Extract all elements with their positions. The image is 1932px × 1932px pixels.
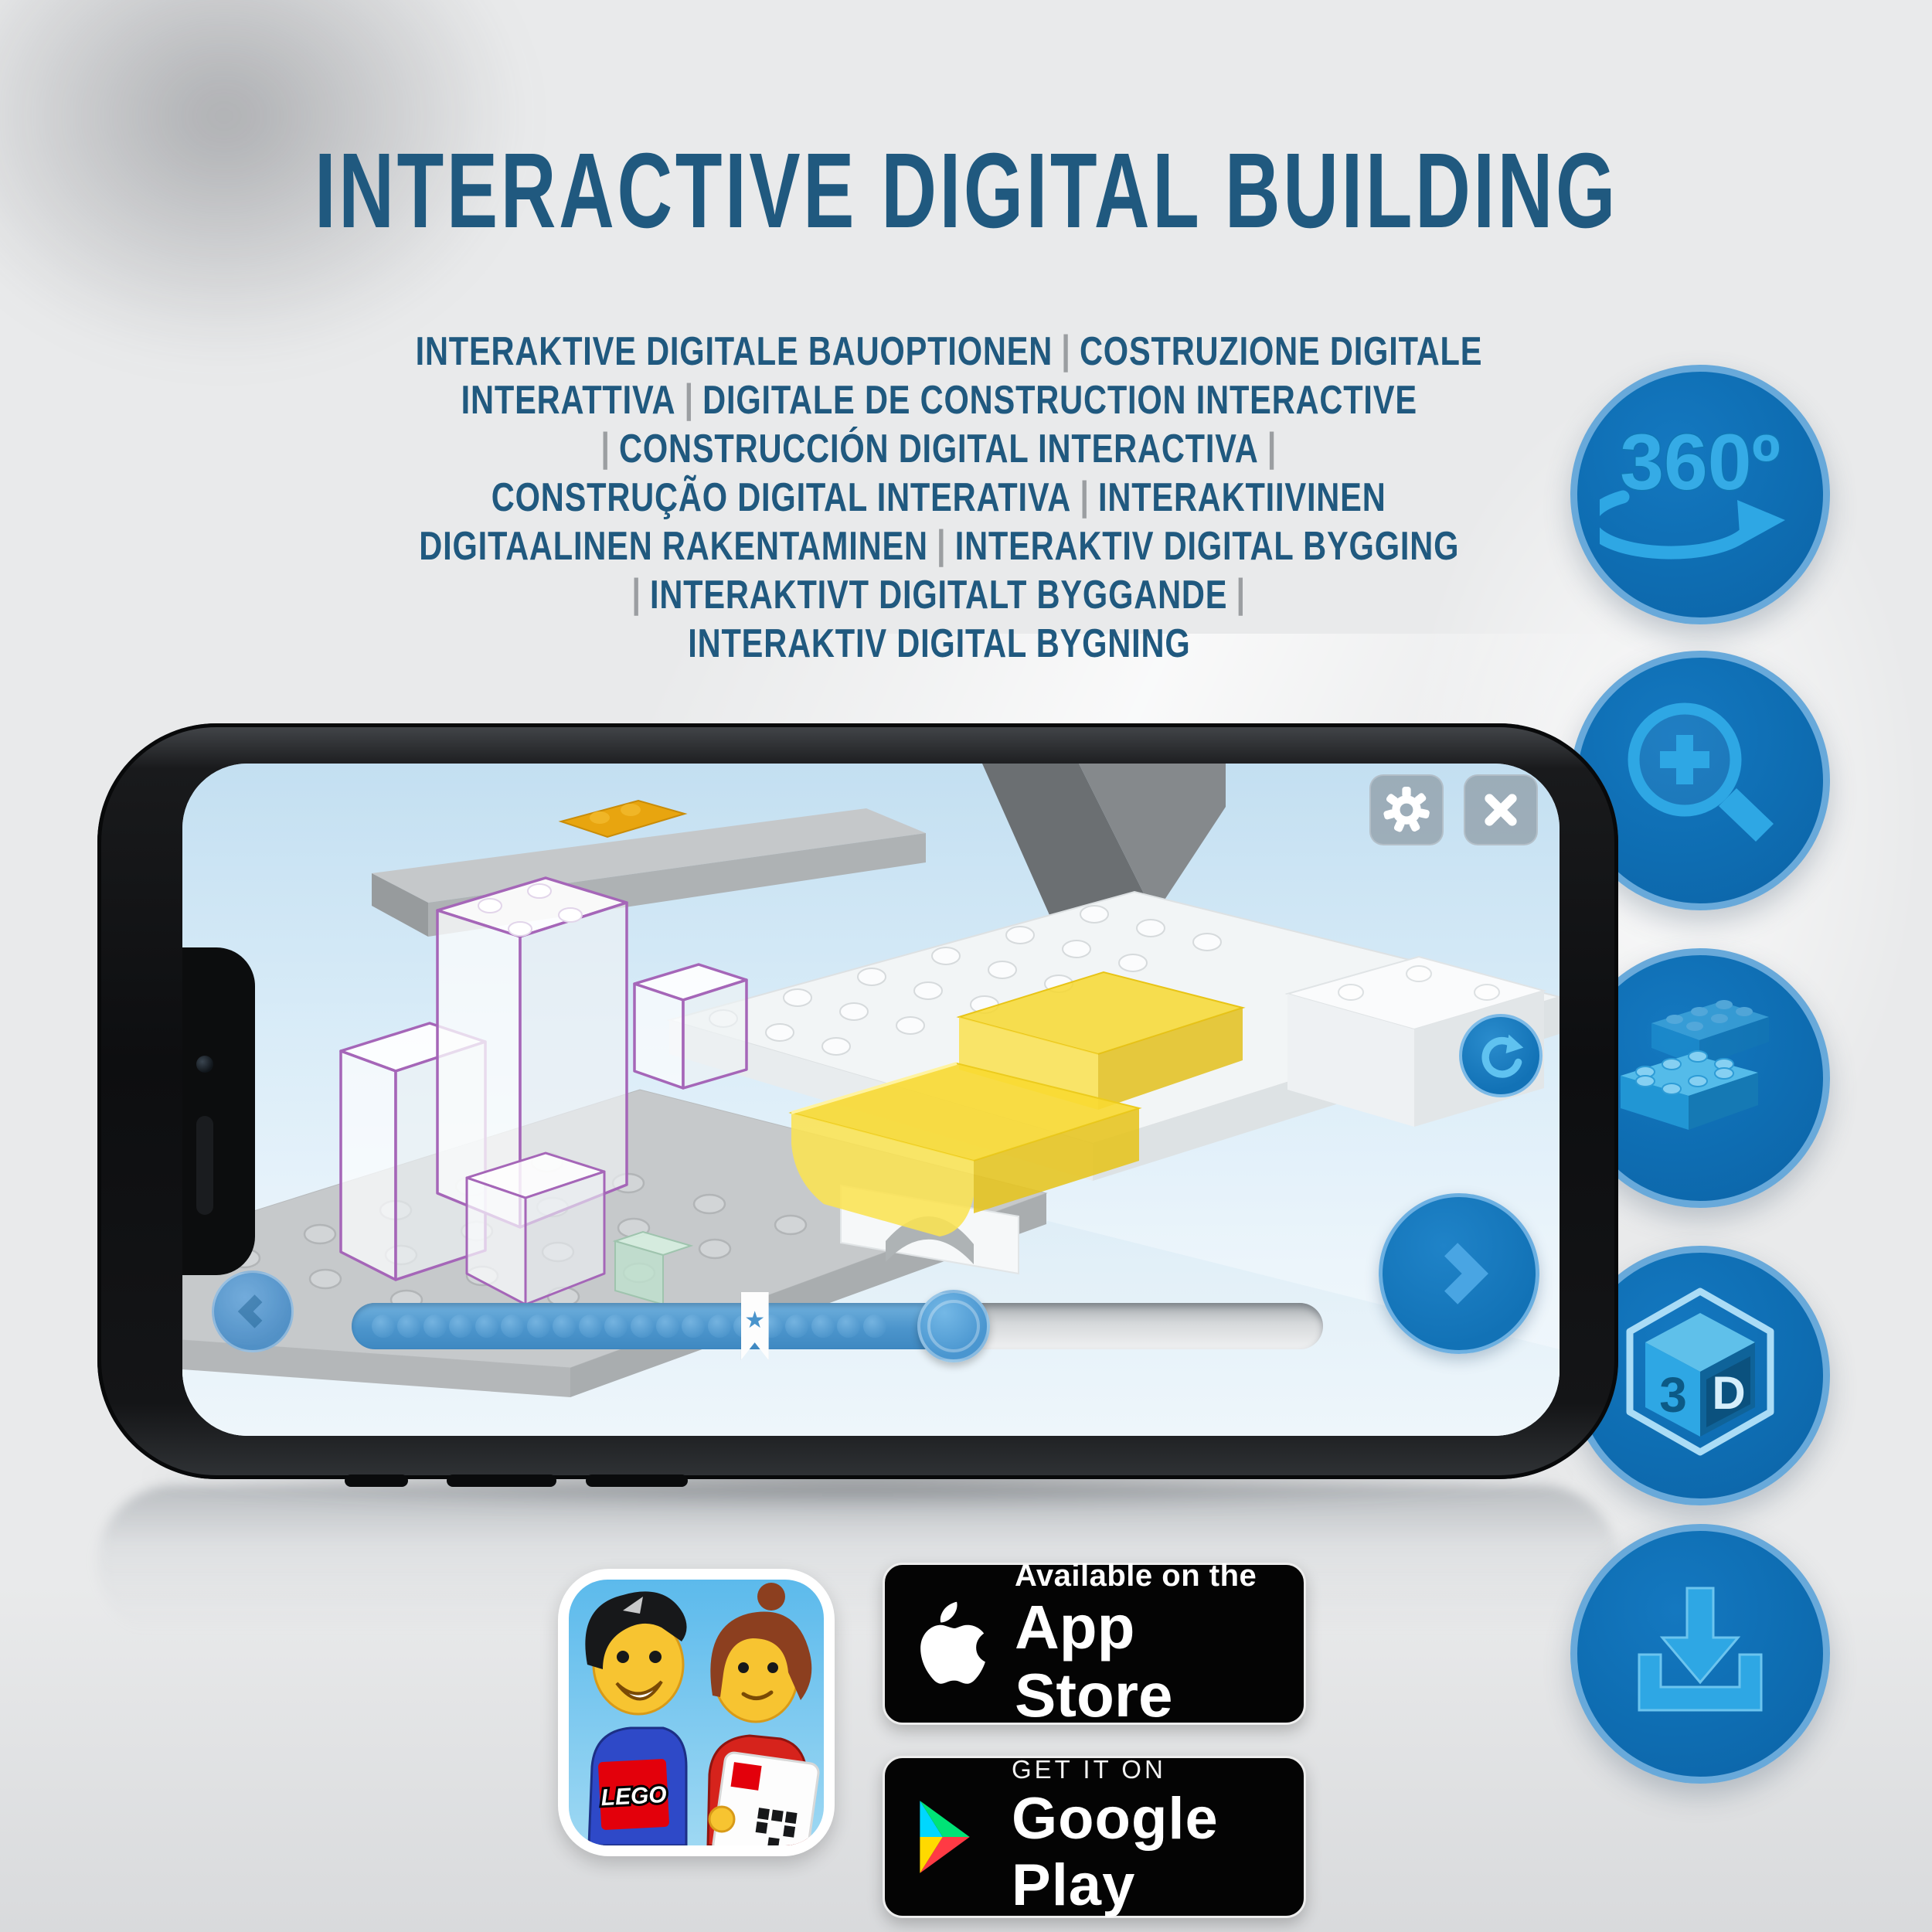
- subtitle-line: DIGITAALINEN RAKENTAMINEN|INTERAKTIV DIG…: [282, 522, 1596, 571]
- step-dot: [501, 1315, 524, 1338]
- step-dot: [449, 1315, 472, 1338]
- download-icon: [1570, 1524, 1830, 1784]
- step-dot: [785, 1315, 808, 1338]
- phone-volume-button: [447, 1475, 556, 1487]
- step-dot: [631, 1315, 654, 1338]
- step-dot: [475, 1315, 498, 1338]
- step-dot: [527, 1315, 550, 1338]
- lego-app-icon[interactable]: LEGO: [558, 1569, 835, 1856]
- app-screen: ★: [182, 764, 1560, 1436]
- google-play-badge[interactable]: GET IT ON Google Play: [883, 1756, 1306, 1918]
- step-dot: [811, 1315, 835, 1338]
- step-dots: [372, 1315, 886, 1338]
- page-title: INTERACTIVE DIGITAL BUILDING: [0, 130, 1932, 253]
- svg-text:LEGO: LEGO: [600, 1782, 668, 1811]
- rotate-model-button[interactable]: [1459, 1014, 1543, 1097]
- chevron-right-icon: [1419, 1233, 1499, 1314]
- phone-volume-button: [586, 1475, 688, 1487]
- progress-thumb[interactable]: [917, 1290, 990, 1362]
- phone-notch: [182, 947, 255, 1275]
- svg-text:360º: 360º: [1620, 418, 1780, 506]
- step-dot: [708, 1315, 731, 1338]
- step-dot: [656, 1315, 679, 1338]
- subtitle-line: CONSTRUÇÃO DIGITAL INTERATIVA|INTERAKTII…: [282, 474, 1596, 522]
- subtitle-line: |INTERAKTIVT DIGITALT BYGGANDE|: [282, 571, 1596, 620]
- brick-glyph: [1604, 981, 1797, 1175]
- step-dot: [604, 1315, 628, 1338]
- svg-text:3: 3: [1659, 1367, 1687, 1423]
- svg-text:D: D: [1712, 1367, 1745, 1419]
- step-dot: [837, 1315, 860, 1338]
- 360-rotation-icon: 360º: [1570, 365, 1830, 624]
- download-glyph: [1604, 1557, 1797, 1750]
- step-dot: [553, 1315, 576, 1338]
- step-dot: [579, 1315, 602, 1338]
- google-play-icon: [914, 1798, 985, 1876]
- previous-step-button[interactable]: [212, 1270, 294, 1352]
- subtitle-line: INTERAKTIVE DIGITALE BAUOPTIONEN|COSTRUZ…: [282, 328, 1596, 376]
- chevron-left-icon: [231, 1290, 274, 1333]
- poster: INTERACTIVE DIGITAL BUILDING INTERAKTIVE…: [0, 0, 1932, 1932]
- close-button[interactable]: [1464, 774, 1538, 845]
- subtitle-line: |CONSTRUCCIÓN DIGITAL INTERACTIVA|: [282, 425, 1596, 474]
- close-icon: [1479, 788, 1522, 832]
- step-dot: [863, 1315, 886, 1338]
- phone-mockup: ★: [97, 723, 1618, 1479]
- next-step-button[interactable]: [1379, 1193, 1539, 1354]
- step-dot: [423, 1315, 447, 1338]
- phone-side-button: [345, 1475, 408, 1487]
- magnifier-glyph: [1604, 684, 1797, 877]
- lego-app-artwork: LEGO: [569, 1580, 824, 1845]
- app-store-badge[interactable]: Available on the App Store: [883, 1563, 1306, 1725]
- subtitle-line: INTERATTIVA|DIGITALE DE CONSTRUCTION INT…: [282, 376, 1596, 425]
- app-store-top-line: Available on the: [1015, 1559, 1304, 1594]
- 360-glyph: 360º: [1600, 398, 1801, 591]
- speaker: [196, 1116, 213, 1215]
- build-progress-bar[interactable]: ★: [352, 1303, 1323, 1349]
- cube-glyph: 3 D: [1604, 1279, 1797, 1472]
- subtitle-line: INTERAKTIV DIGITAL BYGNING: [282, 620, 1596, 668]
- step-dot: [397, 1315, 420, 1338]
- step-dot: [372, 1315, 395, 1338]
- rotate-icon: [1475, 1030, 1526, 1081]
- gear-icon: [1383, 787, 1430, 833]
- subtitle-multilang: INTERAKTIVE DIGITALE BAUOPTIONEN|COSTRUZ…: [282, 328, 1596, 668]
- google-play-top-line: GET IT ON: [1012, 1755, 1304, 1784]
- apple-icon: [914, 1598, 988, 1689]
- step-dot: [682, 1315, 705, 1338]
- settings-button[interactable]: [1369, 774, 1444, 845]
- front-camera: [196, 1056, 213, 1073]
- google-play-bottom-line: Google Play: [1012, 1786, 1304, 1919]
- app-store-bottom-line: App Store: [1015, 1594, 1304, 1730]
